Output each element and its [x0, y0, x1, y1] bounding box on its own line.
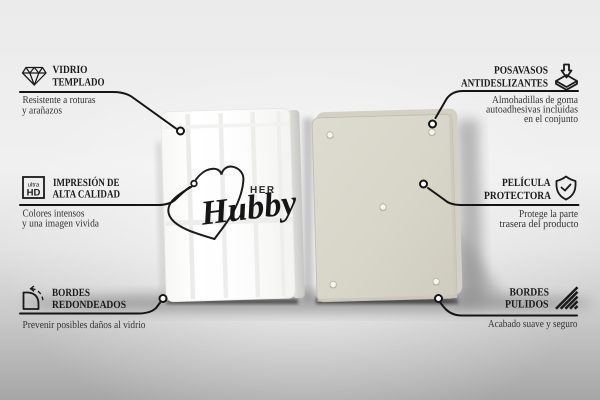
svg-text:y arañazos: y arañazos — [22, 106, 62, 117]
svg-text:IMPRESIÓN DE: IMPRESIÓN DE — [53, 176, 120, 189]
svg-text:PROTECTORA: PROTECTORA — [484, 190, 551, 202]
svg-text:VIDRIO: VIDRIO — [53, 64, 88, 76]
svg-text:y una imagen vivida: y una imagen vivida — [22, 219, 99, 230]
svg-text:BORDES: BORDES — [510, 287, 550, 299]
svg-text:ANTIDESLIZANTES: ANTIDESLIZANTES — [461, 78, 548, 90]
svg-text:TEMPLADO: TEMPLADO — [53, 77, 105, 89]
svg-text:ALTA CALIDAD: ALTA CALIDAD — [53, 189, 121, 201]
svg-text:Prevenir posibles daños al vid: Prevenir posibles daños al vidrio — [23, 320, 146, 331]
svg-text:en el conjunto: en el conjunto — [524, 114, 578, 125]
svg-text:HD: HD — [27, 188, 41, 199]
svg-text:Acabado suave y seguro: Acabado suave y seguro — [488, 319, 578, 330]
svg-text:BORDES: BORDES — [52, 287, 90, 299]
svg-text:trasera del producto: trasera del producto — [500, 219, 579, 230]
svg-text:REDONDEADOS: REDONDEADOS — [52, 299, 126, 311]
svg-text:Resistente a roturas: Resistente a roturas — [23, 95, 96, 106]
svg-text:PULIDOS: PULIDOS — [505, 299, 549, 311]
svg-text:PELÍCULA: PELÍCULA — [502, 176, 551, 189]
svg-text:POSAVASOS: POSAVASOS — [494, 65, 548, 77]
